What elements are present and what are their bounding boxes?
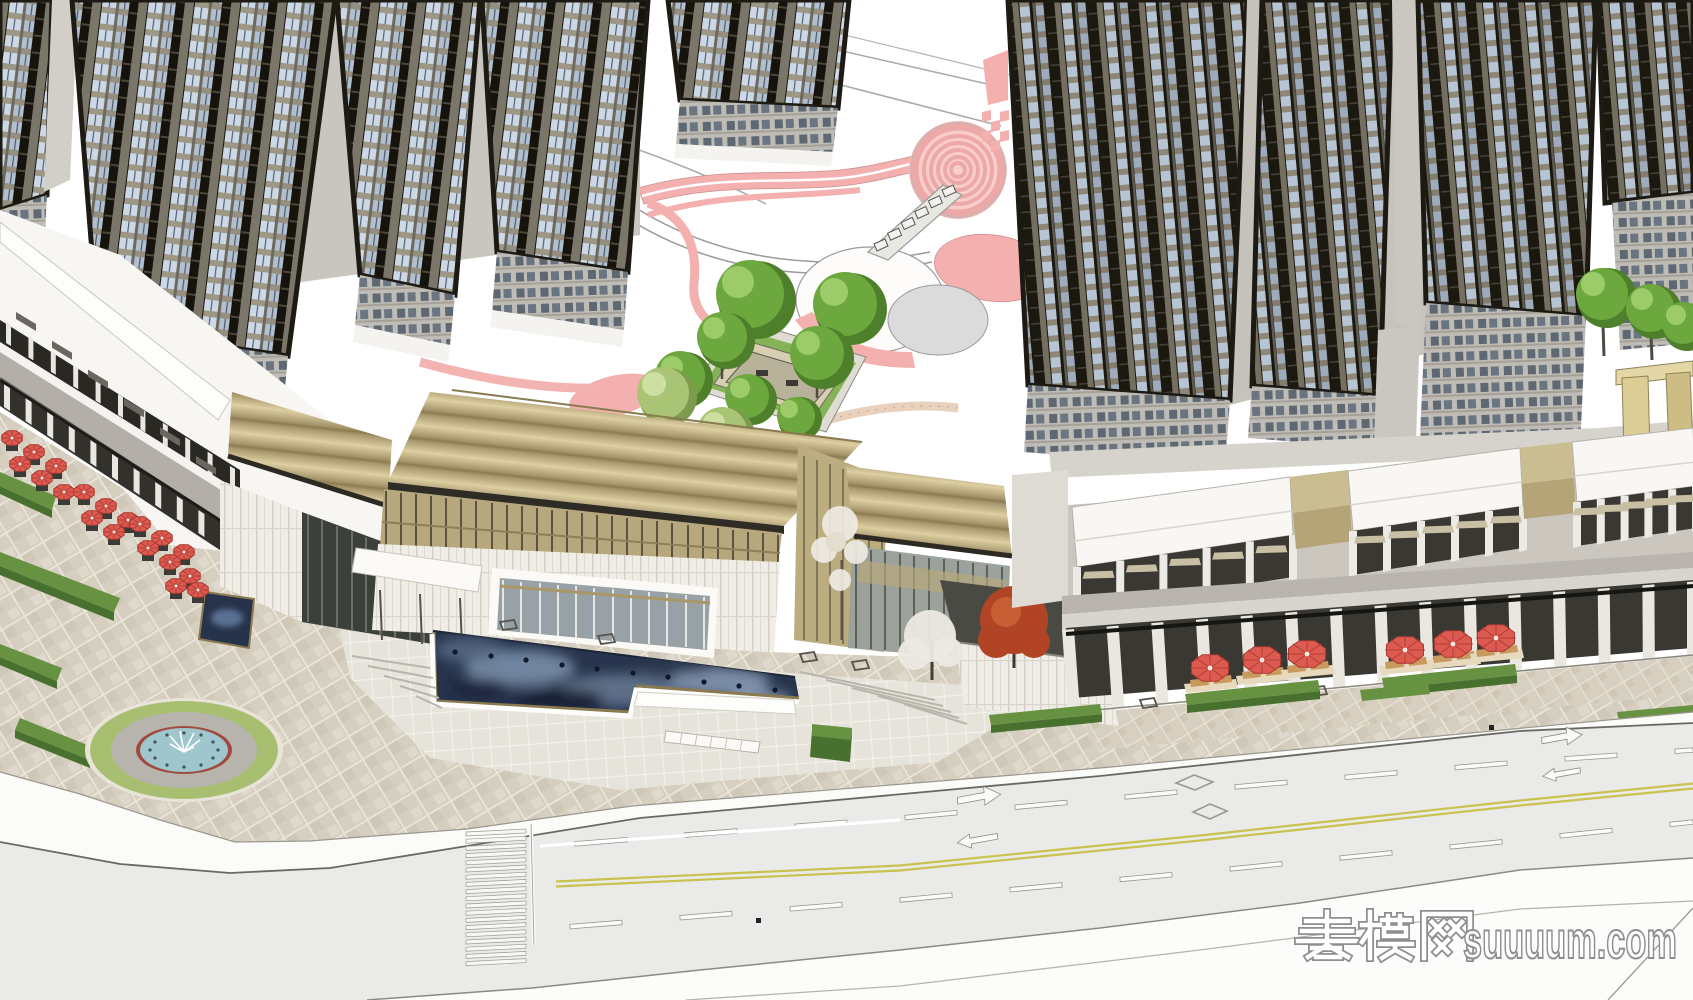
svg-text:suuuum.com: suuuum.com xyxy=(1463,912,1677,970)
